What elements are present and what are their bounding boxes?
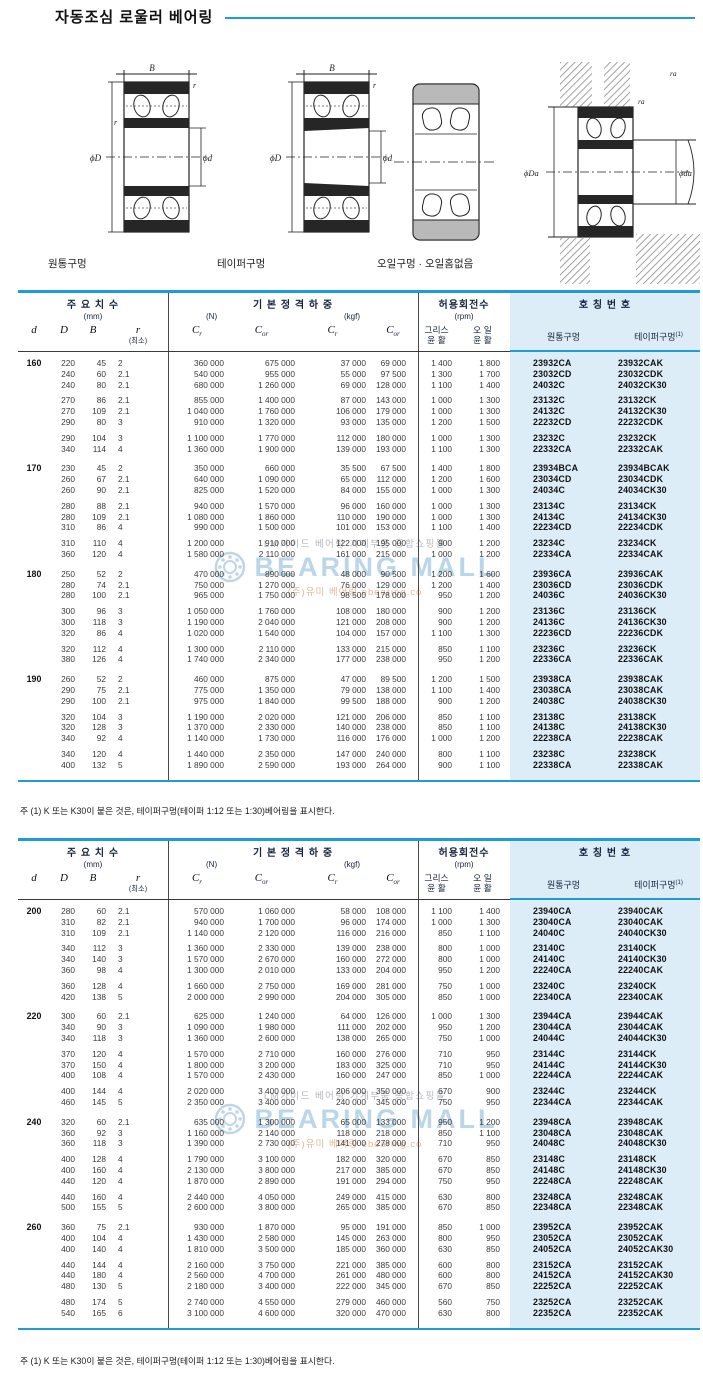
cell-grease-rpm: 1 200 bbox=[418, 569, 455, 580]
row-block: 200280602.1570 0001 060 00058 000108 000… bbox=[18, 906, 700, 938]
cell-r: 4 bbox=[108, 1176, 168, 1187]
cell-grease-rpm: 800 bbox=[418, 954, 455, 965]
cell-cor-kgf: 190 000 bbox=[368, 512, 418, 523]
dim-phid-label: ϕd bbox=[383, 153, 393, 163]
cell-cr-kgf: 183 000 bbox=[297, 1060, 368, 1071]
cell-cr-kgf: 222 000 bbox=[297, 1281, 368, 1292]
cell-D: 310 bbox=[50, 522, 78, 533]
row-block: 31011041 200 0001 910 000122 000195 0009… bbox=[18, 538, 700, 560]
row-block: 3009631 050 0001 760 000108 000180 00090… bbox=[18, 606, 700, 638]
cell-d bbox=[18, 749, 50, 760]
cell-cr-n: 930 000 bbox=[168, 1222, 226, 1233]
cell-cor-kgf: 345 000 bbox=[368, 1097, 418, 1108]
cell-cor-kgf: 238 000 bbox=[368, 722, 418, 733]
cell-cor-kgf: 180 000 bbox=[368, 433, 418, 444]
cell-D: 400 bbox=[50, 1154, 78, 1165]
cell-d bbox=[18, 369, 50, 380]
cell-grease-rpm: 750 bbox=[418, 1176, 455, 1187]
cell-B: 144 bbox=[78, 1086, 108, 1097]
cell-cr-kgf: 108 000 bbox=[297, 606, 368, 617]
cell-cylindrical-number: 22234CD bbox=[510, 522, 617, 533]
cell-oil-rpm: 1 800 bbox=[455, 358, 510, 369]
cell-B: 45 bbox=[78, 358, 108, 369]
cell-cor-n: 2 580 000 bbox=[226, 1233, 297, 1244]
col-d: d bbox=[18, 321, 50, 351]
table-row: 44018042 560 0004 700 000261 000480 0006… bbox=[18, 1270, 700, 1281]
cell-oil-rpm: 1 200 bbox=[455, 549, 510, 560]
table-body: 160220452360 000675 00037 00069 0001 400… bbox=[18, 352, 700, 771]
cell-grease-rpm: 670 bbox=[418, 1154, 455, 1165]
cell-B: 86 bbox=[78, 395, 108, 406]
row-block: 240320602.1635 0001 300 00065 000133 000… bbox=[18, 1117, 700, 1149]
cell-cr-kgf: 320 000 bbox=[297, 1308, 368, 1319]
cell-cr-kgf: 118 000 bbox=[297, 1128, 368, 1139]
dim-r-label: r bbox=[114, 118, 118, 127]
cell-r: 3 bbox=[108, 954, 168, 965]
col-r: r(최소) bbox=[108, 321, 168, 351]
cell-cor-kgf: 89 500 bbox=[368, 674, 418, 685]
table-row: 40016042 130 0003 800 000217 000385 0006… bbox=[18, 1165, 700, 1176]
cell-r: 2 bbox=[108, 674, 168, 685]
dim-r-label: r bbox=[373, 81, 377, 90]
cell-cylindrical-number: 23140C bbox=[510, 943, 617, 954]
table-bottom-rule bbox=[18, 780, 700, 782]
cell-d bbox=[18, 722, 50, 733]
cell-cor-kgf: 294 000 bbox=[368, 1176, 418, 1187]
row-block: 29010431 100 0001 770 000112 000180 0001… bbox=[18, 433, 700, 455]
cell-oil-rpm: 750 bbox=[455, 1297, 510, 1308]
cell-grease-rpm: 670 bbox=[418, 1202, 455, 1213]
cell-tapered-number: 24144CK30 bbox=[617, 1060, 700, 1071]
cell-d bbox=[18, 965, 50, 976]
cell-cor-kgf: 272 000 bbox=[368, 954, 418, 965]
header-speed-limit: 허용회전수(rpm) bbox=[418, 841, 510, 869]
cell-D: 440 bbox=[50, 1176, 78, 1187]
cell-tapered-number: 23948CAK bbox=[617, 1117, 700, 1128]
cell-d bbox=[18, 760, 50, 771]
cell-B: 120 bbox=[78, 1049, 108, 1060]
cell-cylindrical-number: 23132C bbox=[510, 395, 617, 406]
cell-B: 174 bbox=[78, 1297, 108, 1308]
cell-D: 340 bbox=[50, 1033, 78, 1044]
table-row: 48013052 180 0003 400 000222 000345 0006… bbox=[18, 1281, 700, 1292]
cell-cor-kgf: 69 000 bbox=[368, 358, 418, 369]
cell-oil-rpm: 1 300 bbox=[455, 917, 510, 928]
cell-d bbox=[18, 1260, 50, 1271]
cell-cor-kgf: 206 000 bbox=[368, 712, 418, 723]
cell-tapered-number: 23938CAK bbox=[617, 674, 700, 685]
col-D: D bbox=[50, 869, 78, 899]
cell-cr-kgf: 265 000 bbox=[297, 1202, 368, 1213]
cell-cor-n: 1 870 000 bbox=[226, 1222, 297, 1233]
cell-d bbox=[18, 685, 50, 696]
cell-cor-kgf: 108 000 bbox=[368, 906, 418, 917]
cell-cylindrical-number: 22338CA bbox=[510, 760, 617, 771]
cell-grease-rpm: 1 400 bbox=[418, 463, 455, 474]
cell-cylindrical-number: 24138C bbox=[510, 722, 617, 733]
cell-cr-kgf: 191 000 bbox=[297, 1176, 368, 1187]
cell-cylindrical-number: 22244CA bbox=[510, 1070, 617, 1081]
cell-grease-rpm: 850 bbox=[418, 712, 455, 723]
cell-cor-n: 2 110 000 bbox=[226, 644, 297, 655]
cell-cr-n: 460 000 bbox=[168, 674, 226, 685]
cell-cr-n: 825 000 bbox=[168, 485, 226, 496]
cell-tapered-number: 24052CAK30 bbox=[617, 1244, 700, 1255]
dim-B-label: B bbox=[329, 63, 335, 73]
cell-cylindrical-number: 23032CD bbox=[510, 369, 617, 380]
cell-d bbox=[18, 474, 50, 485]
col-tapered-bore: 테이퍼구멍(1) bbox=[617, 869, 700, 899]
cell-d bbox=[18, 549, 50, 560]
cell-d bbox=[18, 1192, 50, 1203]
cell-D: 420 bbox=[50, 992, 78, 1003]
cell-D: 460 bbox=[50, 1097, 78, 1108]
cell-cor-kgf: 112 000 bbox=[368, 474, 418, 485]
cell-oil-rpm: 950 bbox=[455, 1176, 510, 1187]
cell-d bbox=[18, 696, 50, 707]
header-dimensions: 주 요 치 수(mm) bbox=[18, 841, 168, 869]
cell-cylindrical-number: 23052CA bbox=[510, 1233, 617, 1244]
table-bottom-rule bbox=[18, 1328, 700, 1330]
cell-cr-kgf: 64 000 bbox=[297, 1011, 368, 1022]
cell-cylindrical-number: 24134C bbox=[510, 512, 617, 523]
cell-B: 109 bbox=[78, 406, 108, 417]
cell-cylindrical-number: 22334CA bbox=[510, 549, 617, 560]
cell-d bbox=[18, 501, 50, 512]
cell-cor-n: 2 040 000 bbox=[226, 617, 297, 628]
cell-cor-n: 1 520 000 bbox=[226, 485, 297, 496]
cell-tapered-number: 23940CAK bbox=[617, 906, 700, 917]
cell-cor-n: 660 000 bbox=[226, 463, 297, 474]
cell-cr-kgf: 160 000 bbox=[297, 954, 368, 965]
row-block: 34011231 360 0002 330 000139 000238 0008… bbox=[18, 943, 700, 975]
table-row: 3609841 300 0002 010 000133 000204 00095… bbox=[18, 965, 700, 976]
cell-D: 230 bbox=[50, 463, 78, 474]
cell-cor-n: 1 700 000 bbox=[226, 917, 297, 928]
cell-cr-n: 1 370 000 bbox=[168, 722, 226, 733]
cell-r: 3 bbox=[108, 943, 168, 954]
cell-cor-n: 3 200 000 bbox=[226, 1060, 297, 1071]
cell-d bbox=[18, 1270, 50, 1281]
cell-d bbox=[18, 954, 50, 965]
cell-oil-rpm: 1 300 bbox=[455, 395, 510, 406]
cell-tapered-number: 24034CK30 bbox=[617, 485, 700, 496]
col-cylindrical-bore: 원통구멍 bbox=[510, 321, 617, 351]
cell-grease-rpm: 1 100 bbox=[418, 628, 455, 639]
col-oil: 오 일윤 활 bbox=[455, 869, 510, 899]
cell-cor-n: 2 890 000 bbox=[226, 1176, 297, 1187]
cell-grease-rpm: 800 bbox=[418, 1233, 455, 1244]
cell-cor-kgf: 129 000 bbox=[368, 580, 418, 591]
cell-cor-kgf: 193 000 bbox=[368, 444, 418, 455]
cell-D: 260 bbox=[50, 474, 78, 485]
cell-tapered-number: 24138CK30 bbox=[617, 722, 700, 733]
table-row: 44012041 870 0002 890 000191 000294 0007… bbox=[18, 1176, 700, 1187]
cell-B: 145 bbox=[78, 1097, 108, 1108]
cell-d bbox=[18, 644, 50, 655]
cell-tapered-number: 23932CAK bbox=[617, 358, 700, 369]
cell-B: 86 bbox=[78, 522, 108, 533]
cell-D: 280 bbox=[50, 906, 78, 917]
cell-r: 2.1 bbox=[108, 590, 168, 601]
cell-r: 2 bbox=[108, 463, 168, 474]
cell-d bbox=[18, 1086, 50, 1097]
cell-d bbox=[18, 1202, 50, 1213]
cell-cr-kgf: 104 000 bbox=[297, 628, 368, 639]
cell-cor-kgf: 264 000 bbox=[368, 760, 418, 771]
table-row: 44014442 160 0003 750 000221 000385 0006… bbox=[18, 1260, 700, 1271]
cell-oil-rpm: 1 200 bbox=[455, 654, 510, 665]
cell-cor-kgf: 215 000 bbox=[368, 644, 418, 655]
cell-D: 300 bbox=[50, 1011, 78, 1022]
cell-B: 165 bbox=[78, 1308, 108, 1319]
cell-r: 5 bbox=[108, 1281, 168, 1292]
cell-r: 4 bbox=[108, 1070, 168, 1081]
dim-phiD-label: ϕD bbox=[90, 153, 102, 163]
row-block: 32011241 300 0002 110 000133 000215 0008… bbox=[18, 644, 700, 666]
cell-grease-rpm: 1 000 bbox=[418, 433, 455, 444]
cell-cor-n: 890 000 bbox=[226, 569, 297, 580]
cell-tapered-number: 22332CAK bbox=[617, 444, 700, 455]
cell-cylindrical-number: 23940CA bbox=[510, 906, 617, 917]
table-top-rule bbox=[18, 290, 700, 293]
cell-cor-kgf: 133 000 bbox=[368, 1117, 418, 1128]
cell-cr-n: 2 000 000 bbox=[168, 992, 226, 1003]
cell-d: 160 bbox=[18, 358, 50, 369]
diagram-label-oil-hole: 오일구멍 · 오일홈없음 bbox=[377, 256, 473, 271]
cell-cor-n: 4 550 000 bbox=[226, 1297, 297, 1308]
table-row: 46014552 350 0003 400 000240 000345 0007… bbox=[18, 1097, 700, 1108]
cell-B: 128 bbox=[78, 1154, 108, 1165]
cell-cr-kgf: 95 000 bbox=[297, 1222, 368, 1233]
cell-cor-n: 3 400 000 bbox=[226, 1097, 297, 1108]
cell-cylindrical-number: 23038CA bbox=[510, 685, 617, 696]
cell-grease-rpm: 800 bbox=[418, 943, 455, 954]
cell-oil-rpm: 850 bbox=[455, 1244, 510, 1255]
cell-cr-n: 1 160 000 bbox=[168, 1128, 226, 1139]
cell-cr-kgf: 106 000 bbox=[297, 406, 368, 417]
cell-cor-n: 1 540 000 bbox=[226, 628, 297, 639]
cell-cr-kgf: 261 000 bbox=[297, 1270, 368, 1281]
cell-grease-rpm: 850 bbox=[418, 928, 455, 939]
cell-B: 109 bbox=[78, 512, 108, 523]
cell-cor-kgf: 385 000 bbox=[368, 1260, 418, 1271]
cell-cr-n: 1 800 000 bbox=[168, 1060, 226, 1071]
cell-d bbox=[18, 417, 50, 428]
footnote-1: 주 (1) K 또는 K30이 붙은 것은, 테이퍼구멍(테이퍼 1:12 또는… bbox=[20, 804, 335, 817]
bore-diameter-section: 200280602.1570 0001 060 00058 000108 000… bbox=[18, 906, 700, 1002]
table-row: 32010431 190 0002 020 000121 000206 0008… bbox=[18, 712, 700, 723]
cell-grease-rpm: 630 bbox=[418, 1308, 455, 1319]
row-block: 44016042 440 0004 050 000249 000415 0006… bbox=[18, 1192, 700, 1214]
row-block: 34012041 440 0002 350 000147 000240 0008… bbox=[18, 749, 700, 771]
cell-cr-n: 1 570 000 bbox=[168, 1049, 226, 1060]
cell-r: 2.1 bbox=[108, 917, 168, 928]
cell-D: 370 bbox=[50, 1049, 78, 1060]
cell-grease-rpm: 1 200 bbox=[418, 417, 455, 428]
cell-cr-n: 470 000 bbox=[168, 569, 226, 580]
cell-B: 92 bbox=[78, 733, 108, 744]
dim-r-label: r bbox=[193, 81, 197, 90]
cell-cr-n: 1 360 000 bbox=[168, 943, 226, 954]
col-cr-n: Cr bbox=[168, 869, 226, 899]
cell-oil-rpm: 800 bbox=[455, 1260, 510, 1271]
cell-tapered-number: 22334CAK bbox=[617, 549, 700, 560]
cell-D: 260 bbox=[50, 485, 78, 496]
cell-cr-kgf: 140 000 bbox=[297, 722, 368, 733]
row-block: 40014442 020 0003 400 000206 000350 0006… bbox=[18, 1086, 700, 1108]
cell-cr-n: 940 000 bbox=[168, 501, 226, 512]
cell-D: 360 bbox=[50, 981, 78, 992]
cell-grease-rpm: 710 bbox=[418, 1049, 455, 1060]
table-row: 260902.1825 0001 520 00084 000155 0001 0… bbox=[18, 485, 700, 496]
cell-grease-rpm: 1 000 bbox=[418, 395, 455, 406]
cell-cor-kgf: 385 000 bbox=[368, 1165, 418, 1176]
cell-grease-rpm: 1 400 bbox=[418, 358, 455, 369]
cell-cr-n: 1 090 000 bbox=[168, 1022, 226, 1033]
cell-tapered-number: 22348CAK bbox=[617, 1202, 700, 1213]
cell-cylindrical-number: 24144C bbox=[510, 1060, 617, 1071]
cell-d: 190 bbox=[18, 674, 50, 685]
cell-tapered-number: 23052CAK bbox=[617, 1233, 700, 1244]
cell-tapered-number: 23032CDK bbox=[617, 369, 700, 380]
cell-cr-kgf: 161 000 bbox=[297, 549, 368, 560]
cell-oil-rpm: 1 200 bbox=[455, 617, 510, 628]
table-row: 37015041 800 0003 200 000183 000325 0007… bbox=[18, 1060, 700, 1071]
cell-D: 270 bbox=[50, 395, 78, 406]
table-row: 2701092.11 040 0001 760 000106 000179 00… bbox=[18, 406, 700, 417]
table-top-rule bbox=[18, 838, 700, 841]
cell-cor-n: 1 910 000 bbox=[226, 538, 297, 549]
cell-cr-kgf: 182 000 bbox=[297, 1154, 368, 1165]
cell-r: 4 bbox=[108, 522, 168, 533]
cell-cylindrical-number: 22232CD bbox=[510, 417, 617, 428]
cell-oil-rpm: 1 600 bbox=[455, 569, 510, 580]
cell-tapered-number: 24134CK30 bbox=[617, 512, 700, 523]
cell-grease-rpm: 600 bbox=[418, 1260, 455, 1271]
cell-tapered-number: 24040CK30 bbox=[617, 928, 700, 939]
cell-cr-n: 975 000 bbox=[168, 696, 226, 707]
cell-cr-n: 1 890 000 bbox=[168, 760, 226, 771]
cell-cr-kgf: 121 000 bbox=[297, 617, 368, 628]
cell-d bbox=[18, 712, 50, 723]
cell-cor-kgf: 216 000 bbox=[368, 928, 418, 939]
cell-cor-n: 1 500 000 bbox=[226, 522, 297, 533]
cell-B: 60 bbox=[78, 1011, 108, 1022]
cell-tapered-number: 23234CK bbox=[617, 538, 700, 549]
header-dimensions: 주 요 치 수(mm) bbox=[18, 293, 168, 321]
cell-r: 5 bbox=[108, 1297, 168, 1308]
cell-D: 310 bbox=[50, 928, 78, 939]
cell-grease-rpm: 750 bbox=[418, 981, 455, 992]
cell-cr-n: 2 740 000 bbox=[168, 1297, 226, 1308]
cell-tapered-number: 23936CAK bbox=[617, 569, 700, 580]
cell-r: 3 bbox=[108, 712, 168, 723]
cell-grease-rpm: 950 bbox=[418, 590, 455, 601]
table-row: 38012641 740 0002 340 000177 000238 0009… bbox=[18, 654, 700, 665]
table-row: 260672.1640 0001 090 00065 000112 0001 2… bbox=[18, 474, 700, 485]
row-block: 37012041 570 0002 710 000160 000276 0007… bbox=[18, 1049, 700, 1081]
cell-grease-rpm: 710 bbox=[418, 1060, 455, 1071]
cell-r: 3 bbox=[108, 1033, 168, 1044]
cell-cor-n: 1 400 000 bbox=[226, 395, 297, 406]
cell-cylindrical-number: 23932CA bbox=[510, 358, 617, 369]
cell-tapered-number: 22252CAK bbox=[617, 1281, 700, 1292]
cell-d bbox=[18, 1070, 50, 1081]
cell-oil-rpm: 1 300 bbox=[455, 1011, 510, 1022]
cell-cor-n: 3 400 000 bbox=[226, 1086, 297, 1097]
cell-cor-kgf: 135 000 bbox=[368, 417, 418, 428]
cell-tapered-number: 23134CK bbox=[617, 501, 700, 512]
table-row: 40014442 020 0003 400 000206 000350 0006… bbox=[18, 1086, 700, 1097]
cell-r: 3 bbox=[108, 1022, 168, 1033]
cell-oil-rpm: 1 500 bbox=[455, 417, 510, 428]
cell-B: 118 bbox=[78, 1138, 108, 1149]
cell-cor-n: 1 060 000 bbox=[226, 906, 297, 917]
cell-B: 155 bbox=[78, 1202, 108, 1213]
cell-tapered-number: 23232CK bbox=[617, 433, 700, 444]
cell-cylindrical-number: 23236C bbox=[510, 644, 617, 655]
cell-cylindrical-number: 22248CA bbox=[510, 1176, 617, 1187]
cell-r: 2.1 bbox=[108, 928, 168, 939]
cell-D: 340 bbox=[50, 749, 78, 760]
cell-cr-n: 2 180 000 bbox=[168, 1281, 226, 1292]
cell-cr-kgf: 206 000 bbox=[297, 1086, 368, 1097]
cell-grease-rpm: 1 200 bbox=[418, 474, 455, 485]
table-row: 34014031 570 0002 670 000160 000272 0008… bbox=[18, 954, 700, 965]
footnote-2: 주 (1) K 또는 K30이 붙은 것은, 테이퍼구멍(테이퍼 1:12 또는… bbox=[20, 1354, 335, 1367]
cell-cr-n: 1 190 000 bbox=[168, 617, 226, 628]
cell-D: 280 bbox=[50, 590, 78, 601]
cell-oil-rpm: 850 bbox=[455, 1281, 510, 1292]
cell-B: 52 bbox=[78, 674, 108, 685]
bore-diameter-section: 160220452360 000675 00037 00069 0001 400… bbox=[18, 358, 700, 454]
cell-cor-n: 3 500 000 bbox=[226, 1244, 297, 1255]
cell-B: 60 bbox=[78, 906, 108, 917]
table-row: 3609231 160 0002 140 000118 000218 00085… bbox=[18, 1128, 700, 1139]
cell-cr-n: 1 020 000 bbox=[168, 628, 226, 639]
cell-B: 160 bbox=[78, 1165, 108, 1176]
row-block: 280882.1940 0001 570 00096 000160 0001 0… bbox=[18, 501, 700, 533]
cell-grease-rpm: 1 000 bbox=[418, 512, 455, 523]
cell-cr-kgf: 145 000 bbox=[297, 1233, 368, 1244]
cell-cor-n: 1 770 000 bbox=[226, 433, 297, 444]
dim-phiD-label: ϕD bbox=[270, 153, 282, 163]
cell-cor-kgf: 265 000 bbox=[368, 1033, 418, 1044]
cell-tapered-number: 24132CK30 bbox=[617, 406, 700, 417]
cell-cr-kgf: 112 000 bbox=[297, 433, 368, 444]
cell-cr-n: 750 000 bbox=[168, 580, 226, 591]
cell-cr-n: 1 580 000 bbox=[168, 549, 226, 560]
cell-tapered-number: 23952CAK bbox=[617, 1222, 700, 1233]
cell-D: 340 bbox=[50, 943, 78, 954]
table-row: 2801002.1965 0001 750 00098 500178 00095… bbox=[18, 590, 700, 601]
cell-cr-kgf: 87 000 bbox=[297, 395, 368, 406]
cell-B: 90 bbox=[78, 485, 108, 496]
cell-r: 4 bbox=[108, 1086, 168, 1097]
cell-cor-n: 1 350 000 bbox=[226, 685, 297, 696]
col-B: B bbox=[78, 321, 108, 351]
cell-grease-rpm: 950 bbox=[418, 1022, 455, 1033]
cell-tapered-number: 23138CK bbox=[617, 712, 700, 723]
col-tapered-bore: 테이퍼구멍(1) bbox=[617, 321, 700, 351]
cell-r: 3 bbox=[108, 722, 168, 733]
cell-d bbox=[18, 1097, 50, 1108]
cell-cr-n: 1 050 000 bbox=[168, 606, 226, 617]
dim-B-label: B bbox=[149, 63, 155, 73]
table-row: 160220452360 000675 00037 00069 0001 400… bbox=[18, 358, 700, 369]
cell-cor-n: 1 980 000 bbox=[226, 1022, 297, 1033]
